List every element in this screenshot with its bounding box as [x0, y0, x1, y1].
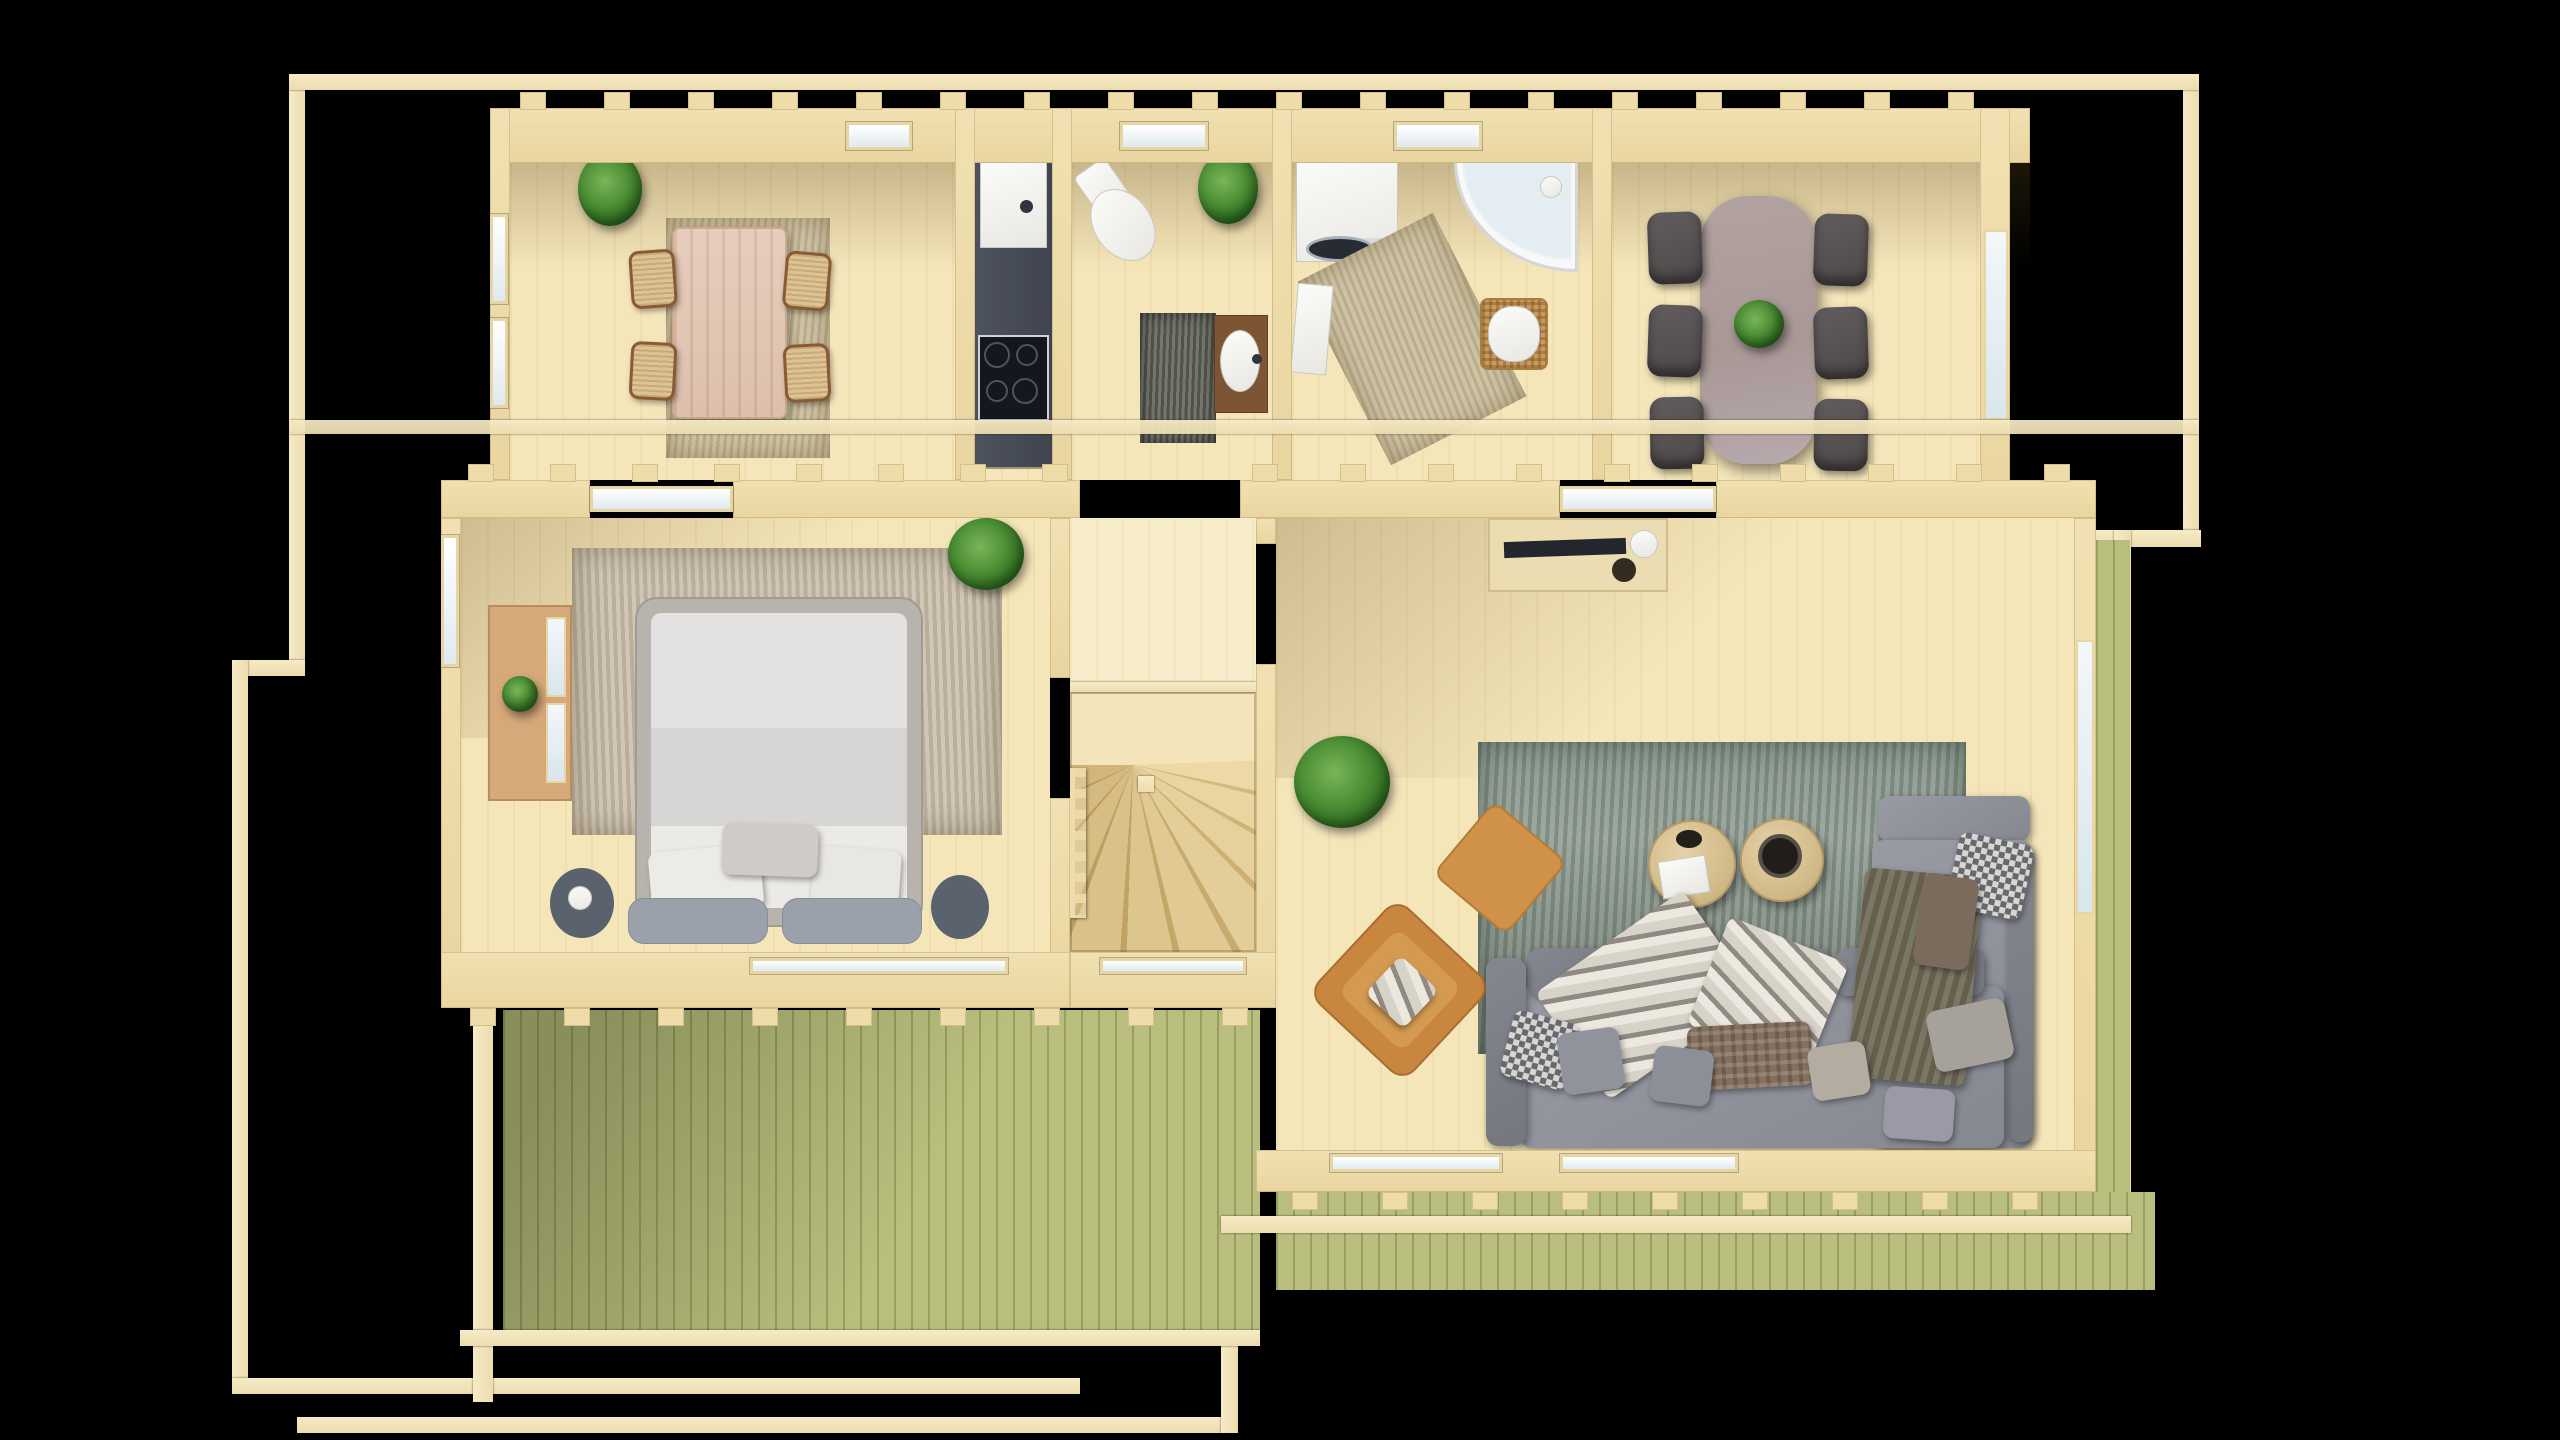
study-chair: [783, 343, 832, 403]
bottom-wall-tabs-right: [1562, 1192, 1588, 1210]
middle-wall-tabs-left: [714, 464, 740, 482]
pergola-right-beam: [2183, 74, 2199, 546]
top-wall-tabs: [1108, 92, 1134, 110]
bottom-wall-tabs-left: [470, 1008, 496, 1026]
bottom-wall-tabs-right: [1382, 1192, 1408, 1210]
living-right-door: [2076, 640, 2094, 914]
top-wall-tabs: [1024, 92, 1050, 110]
bedroom-hall-wall: [1050, 518, 1070, 678]
middle-wall-tabs-left: [878, 464, 904, 482]
bedroom-plant: [948, 518, 1024, 590]
living-bottom-window: [1330, 1154, 1502, 1172]
coffee-table-bowl: [1758, 834, 1802, 878]
top-wall-tabs: [772, 92, 798, 110]
top-wall-tabs: [1948, 92, 1974, 110]
bedroom-bottom-window: [750, 958, 1008, 974]
middle-wall-tabs-right: [1340, 464, 1366, 482]
middle-wall-tabs-left: [550, 464, 576, 482]
bottom-wall-tabs-left: [1034, 1008, 1060, 1026]
console-speaker: [1630, 530, 1658, 558]
stairs-newel: [1138, 776, 1154, 792]
sofa-pillow: [1556, 1026, 1626, 1096]
terrace-left-deck: [503, 1010, 1260, 1330]
wc-faucet: [1252, 354, 1262, 364]
study-top-window: [846, 122, 912, 150]
middle-wall-tabs-right: [1604, 464, 1630, 482]
wc-top-window: [1120, 122, 1208, 150]
pergola-left-beam: [289, 74, 305, 674]
middle-wall-tabs-left: [468, 464, 494, 482]
bottom-wall-tabs-left: [1222, 1008, 1248, 1026]
sofa-pillow: [1882, 1086, 1955, 1143]
stairs-top-rail: [1070, 682, 1256, 692]
cooktop-burner: [1012, 378, 1038, 404]
top-wall-tabs: [688, 92, 714, 110]
kitchen-faucet: [1020, 200, 1033, 213]
bottom-wall-tabs-right: [1922, 1192, 1948, 1210]
bottom-wall-tabs-left: [658, 1008, 684, 1026]
bottom-wall-tabs-left: [940, 1008, 966, 1026]
top-wall-tabs: [1360, 92, 1386, 110]
bottom-wall-tabs-left: [1128, 1008, 1154, 1026]
top-wall-tabs: [1696, 92, 1722, 110]
floor-plan-render: [0, 0, 2560, 1440]
bath-basket-towels: [1488, 306, 1540, 362]
hall-living-wall: [1256, 518, 1276, 544]
study-table: [672, 227, 787, 419]
middle-wall-window: [1560, 486, 1716, 512]
pergola-left-inner-beam: [232, 660, 248, 1393]
stairs-winder: [1070, 692, 1256, 952]
console-bowl: [1612, 558, 1636, 582]
dining-chair: [1813, 213, 1869, 287]
middle-wall-tabs-left: [632, 464, 658, 482]
bed-blanket-fold: [651, 728, 907, 828]
middle-wall-tabs-right: [1516, 464, 1542, 482]
dining-chair: [1813, 306, 1869, 380]
terrace-right-strip: [2096, 540, 2130, 1192]
bottom-wall-tabs-left: [564, 1008, 590, 1026]
study-chair: [782, 250, 833, 312]
middle-wall-segment: [1240, 480, 1560, 518]
bottom-wall-tabs-right: [1832, 1192, 1858, 1210]
middle-wall-tabs-right: [1868, 464, 1894, 482]
pergola-bottom-beam-3: [460, 1330, 1260, 1346]
sofa-pillow: [1806, 1040, 1872, 1102]
top-wall-tabs: [520, 92, 546, 110]
living-plant: [1294, 736, 1390, 828]
middle-wall-segment: [1716, 480, 2096, 518]
top-wall-tabs: [1192, 92, 1218, 110]
bath-shower-head: [1540, 176, 1562, 198]
middle-wall-segment: [733, 480, 1080, 518]
pergola-top-beam: [289, 74, 2199, 90]
sofa-pillow: [1649, 1045, 1715, 1108]
bottom-wall-tabs-left: [752, 1008, 778, 1026]
middle-wall-tabs-right: [1780, 464, 1806, 482]
pergola-mid-beam: [289, 420, 2199, 434]
bottom-wall-tabs-right: [1292, 1192, 1318, 1210]
middle-wall-tabs-left: [1042, 464, 1068, 482]
study-chair: [629, 341, 678, 401]
bedroom-left-window: [441, 535, 459, 667]
bottom-wall-tabs-right: [2012, 1192, 2038, 1210]
bottom-wall-tabs-right: [1742, 1192, 1768, 1210]
bath-top-window: [1394, 122, 1482, 150]
bed-pillow: [721, 822, 819, 877]
top-wall-tabs: [856, 92, 882, 110]
study-chair: [628, 248, 678, 309]
middle-wall-tabs-right: [2044, 464, 2070, 482]
terrace-cross-beam: [1221, 1216, 2131, 1233]
study-plant: [578, 152, 642, 226]
middle-wall-tabs-right: [1252, 464, 1278, 482]
top-wall-tabs: [604, 92, 630, 110]
bed-bench-cushion: [628, 898, 768, 944]
coffee-table-tray: [1657, 854, 1710, 899]
middle-wall-tabs-right: [1956, 464, 1982, 482]
bed-bench-cushion: [782, 898, 922, 944]
wardrobe-mirror: [546, 617, 566, 697]
top-wall-tabs: [940, 92, 966, 110]
top-wall-tabs: [1780, 92, 1806, 110]
sofa-corner-cushion: [1878, 796, 2030, 842]
pergola-bottom-beam-1: [232, 1378, 1080, 1394]
dining-chair: [1647, 304, 1703, 378]
middle-wall-tabs-left: [796, 464, 822, 482]
hall-bottom-window: [1100, 958, 1246, 974]
top-wall-tabs: [1276, 92, 1302, 110]
middle-wall-tabs-right: [1692, 464, 1718, 482]
dining-chair: [1813, 399, 1868, 472]
dining-plant: [1734, 300, 1784, 348]
cooktop-burner: [984, 342, 1010, 368]
bottom-wall-tabs-left: [846, 1008, 872, 1026]
middle-wall-window: [590, 486, 733, 512]
top-wall: [490, 108, 2030, 163]
top-wall-tabs: [1444, 92, 1470, 110]
cooktop-burner: [986, 380, 1008, 402]
top-wall-tabs: [1612, 92, 1638, 110]
dining-chair: [1647, 211, 1703, 285]
bedroom-side-table: [931, 875, 989, 939]
wardrobe-plant: [502, 676, 538, 712]
dining-right-door: [1984, 230, 2008, 420]
study-left-window: [490, 214, 508, 304]
kitchen-sink-unit: [980, 162, 1047, 248]
stairs-railing: [1070, 768, 1086, 918]
bottom-wall-tabs-right: [1472, 1192, 1498, 1210]
top-wall-tabs: [1528, 92, 1554, 110]
middle-wall-tabs-left: [960, 464, 986, 482]
study-left-window: [490, 318, 508, 408]
cooktop-burner: [1016, 344, 1038, 366]
middle-wall-segment: [441, 480, 590, 518]
living-bottom-window: [1560, 1154, 1738, 1172]
pergola-bottom-beam-2: [297, 1417, 1238, 1433]
bottom-wall-tabs-right: [1652, 1192, 1678, 1210]
coffee-table-bowl: [1676, 830, 1702, 848]
side-table-plant: [568, 886, 592, 910]
top-wall-tabs: [1864, 92, 1890, 110]
middle-wall-tabs-right: [1428, 464, 1454, 482]
wardrobe-mirror: [546, 703, 566, 783]
